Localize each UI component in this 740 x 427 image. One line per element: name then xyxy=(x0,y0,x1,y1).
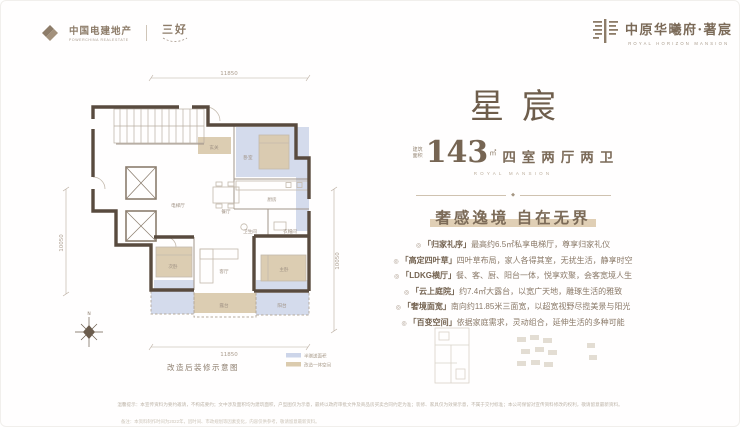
bullet-icon: ◎ xyxy=(394,274,399,280)
brand-left: 中国电建地产 POWERCHINA REALESTATE 三好 xyxy=(39,21,189,44)
feature-item: ◎「云上庭院」约7.4㎡大露台，以宽广天地，雕琢生活的雅致 xyxy=(381,285,645,301)
sub-brand: 三好 xyxy=(161,21,189,44)
disclaimer-line2: 备注：本资料制作时间为2022年，因时间、市政规划等因素变化，内容仅供参考，敬请… xyxy=(121,419,320,425)
staircase xyxy=(114,109,204,143)
room-label-core: 电梯厅 xyxy=(171,202,185,209)
room-label-foyer: 玄关 xyxy=(209,144,219,151)
sub-brand-label: 三好 xyxy=(162,21,188,37)
compass-icon: N xyxy=(75,311,103,347)
dashed-arc-icon xyxy=(161,37,189,44)
room-label-terrace: 露台 xyxy=(219,302,229,309)
room-label-balcony: 阳台 xyxy=(277,302,287,309)
plan-caption: 改造后装修示意图 xyxy=(167,362,239,372)
dim-top: 11850 xyxy=(220,71,238,77)
flyer-page: 中国电建地产 POWERCHINA REALESTATE 三好 中原华曦府·著宸 xyxy=(0,0,740,427)
dim-bottom: 11850 xyxy=(220,352,238,358)
unit-spec: 建筑面积 143 ㎡ 四室两厅两卫 xyxy=(381,139,645,167)
mini-floorplan-sketch xyxy=(435,328,469,383)
room-label-master: 主卧 xyxy=(279,266,289,273)
brand-right-name-en: ROYAL HORIZON MANSION xyxy=(625,41,733,46)
brand-left-name: 中国电建地产 xyxy=(69,23,132,37)
legend-swatch-tan xyxy=(286,362,301,367)
area-unit: ㎡ xyxy=(489,148,496,158)
bullet-icon: ◎ xyxy=(401,321,406,327)
feature-item: ◎「归家礼序」最高约6.5㎡私享电梯厅，尊享归家礼仪 xyxy=(381,238,645,254)
room-label-cloak: 衣帽间 xyxy=(283,228,297,235)
layout-text: 四室两厅两卫 xyxy=(502,146,619,166)
mansion-logo-icon xyxy=(593,18,618,46)
legend-label-tan: 改造一体空间 xyxy=(304,362,331,369)
area-value: 143 xyxy=(426,139,489,167)
feature-item: ◎「奢境面宽」南向约11.85米三面宽，以超宽视野尽揽美景与阳光 xyxy=(381,300,645,316)
legend-label-blue: 半赠送面积 xyxy=(304,353,327,360)
brand-right: 中原华曦府·著宸 ROYAL HORIZON MANSION xyxy=(593,18,733,46)
feature-item: ◎「LDKG横厅」餐、客、厨、阳台一体，悦享欢聚，会客宽境人生 xyxy=(381,269,645,285)
room-label-kitchen: 厨房 xyxy=(267,196,277,203)
bullet-icon: ◎ xyxy=(404,290,409,296)
dim-right: 10050 xyxy=(335,252,341,270)
elevator-shafts xyxy=(126,167,156,241)
floorplan: 电梯厅 玄关 卧室 厨房 卫生间 衣帽间 餐厅 客厅 次卧 主卧 露台 阳台 xyxy=(56,59,356,404)
area-prefix: 建筑面积 xyxy=(413,147,423,159)
bullet-icon: ◎ xyxy=(396,305,401,311)
room-label-dining: 餐厅 xyxy=(221,208,231,215)
brand-right-name: 中原华曦府·著宸 xyxy=(625,19,733,38)
site-blocks-sketch xyxy=(517,335,597,367)
room-label-bed2: 卧室 xyxy=(243,154,253,161)
disclaimer-line1: 温馨提示：本宣传资料为要约邀请，不构成要约；文中涉及面积均为建筑面积，户型图仅为… xyxy=(117,402,622,408)
powerchina-logo-icon xyxy=(39,22,61,44)
legend-swatch-blue xyxy=(286,353,301,358)
bullet-icon: ◎ xyxy=(393,259,398,265)
feature-item: ◎「高定四叶草」四叶草布局，家人各得其室，无扰生活，静享时空 xyxy=(381,254,645,270)
compass-north-label: N xyxy=(87,311,90,317)
slogan: 奢感逸境 自在无界 xyxy=(381,206,645,228)
room-label-bed3: 次卧 xyxy=(168,263,178,270)
thumbnail-sketches xyxy=(429,325,614,392)
room-label-living: 客厅 xyxy=(219,268,229,275)
brand-left-name-en: POWERCHINA REALESTATE xyxy=(69,38,132,42)
diamond-ornament-icon: ◆ xyxy=(511,193,515,198)
ornament-divider: ◆ xyxy=(416,193,611,198)
room-label-bath: 卫生间 xyxy=(243,228,257,235)
feature-list: ◎「归家礼序」最高约6.5㎡私享电梯厅，尊享归家礼仪 ◎「高定四叶草」四叶草布局… xyxy=(381,238,645,332)
dim-left: 10050 xyxy=(59,234,65,252)
layout-subtitle-en: ROYAL MANSION xyxy=(381,171,645,176)
unit-panel: 星宸 建筑面积 143 ㎡ 四室两厅两卫 ROYAL MANSION ◆ 奢感逸… xyxy=(381,79,645,332)
bullet-icon: ◎ xyxy=(416,243,421,249)
header-divider xyxy=(146,25,147,41)
unit-title: 星宸 xyxy=(381,79,645,128)
plan-legend: 半赠送面积 改造一体空间 xyxy=(286,353,331,369)
